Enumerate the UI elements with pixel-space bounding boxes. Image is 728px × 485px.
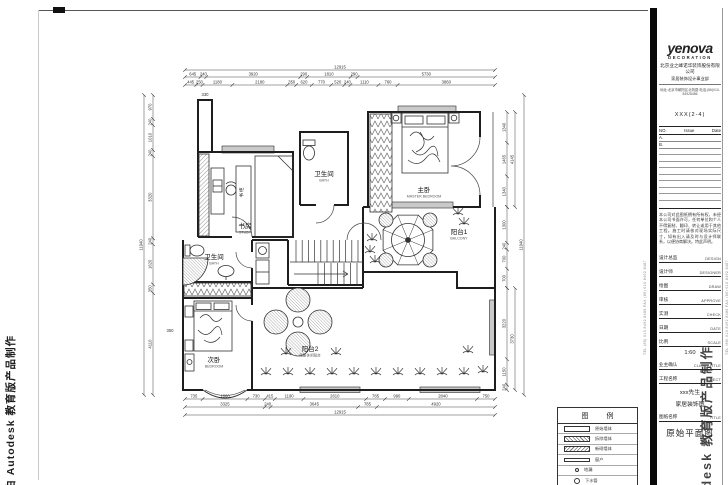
legend-item-downpipe: 下水管 bbox=[558, 476, 637, 485]
svg-text:4110: 4110 bbox=[148, 339, 153, 349]
svg-text:1810: 1810 bbox=[324, 72, 334, 77]
svg-text:12915: 12915 bbox=[334, 65, 346, 70]
field-design: 设计总监DESIGN bbox=[659, 249, 721, 263]
issue-blank-row bbox=[659, 194, 721, 201]
stairs bbox=[290, 240, 363, 285]
svg-text:3645: 3645 bbox=[310, 402, 320, 407]
legend-item-floor-drain: 地漏 bbox=[558, 466, 637, 476]
field-label-en: TITLE bbox=[710, 416, 721, 420]
field-label-en: CLIENT TITLE bbox=[694, 364, 721, 368]
svg-text:700: 700 bbox=[502, 274, 507, 282]
legend-item-label: 原始墙体 bbox=[595, 426, 612, 432]
svg-text:240: 240 bbox=[148, 149, 153, 157]
field-label-cn: 业主确认 bbox=[659, 362, 677, 368]
wall-demolish-symbol bbox=[564, 436, 590, 442]
dim-chain-right-lower: 32201150240 bbox=[502, 286, 509, 392]
issue-table: NO. Issue Date A.B. bbox=[659, 126, 721, 201]
dim-chain-right-upper-sub: 4145 bbox=[510, 110, 517, 209]
svg-text:1010: 1010 bbox=[148, 132, 153, 142]
dim-chain-bottom-total: 12915 bbox=[183, 410, 497, 417]
svg-text:1150: 1150 bbox=[502, 367, 507, 377]
issue-row: B. bbox=[659, 142, 721, 149]
room-sublabel: STUDY bbox=[239, 231, 252, 235]
field-label-en: CHECK bbox=[707, 313, 721, 317]
svg-text:240: 240 bbox=[264, 402, 272, 407]
svg-text:415: 415 bbox=[266, 394, 274, 399]
svg-text:3860: 3860 bbox=[442, 80, 452, 85]
field-label-cn: 图纸名称 bbox=[659, 414, 677, 420]
dim-chain-top-row-2: 4452501180218035062077052024011107603860 bbox=[183, 80, 497, 87]
svg-text:1110: 1110 bbox=[360, 80, 369, 85]
room-label: 阳台1 bbox=[451, 227, 468, 236]
field-label-en: PROJECT bbox=[702, 378, 721, 382]
svg-text:3325: 3325 bbox=[220, 402, 230, 407]
svg-text:1620: 1620 bbox=[148, 259, 153, 269]
dim-chain-right-upper: 134014651340 bbox=[502, 110, 509, 209]
room-sublabel: 观景休闲阳台 bbox=[299, 353, 321, 358]
svg-text:970: 970 bbox=[148, 103, 153, 111]
project-code: XXX(2-4) bbox=[659, 112, 721, 118]
issue-row: A. bbox=[659, 135, 721, 142]
svg-text:12915: 12915 bbox=[334, 410, 346, 415]
svg-text:620: 620 bbox=[300, 80, 308, 85]
field-approve: 审核APPROVE bbox=[659, 291, 721, 305]
issue-col-issue: Issue bbox=[684, 128, 694, 133]
field-label-cn: 工程名称 bbox=[659, 376, 677, 382]
svg-text:2180: 2180 bbox=[255, 80, 265, 85]
dimension-chains: 6452403920290181029057304452501180218035… bbox=[139, 65, 526, 417]
room-label: 书房 bbox=[239, 221, 252, 230]
drawing-sheet: 由 Autodesk 教育版产品制作 由 Autodesk 教育版产品制作 TE… bbox=[0, 0, 728, 485]
svg-text:3320: 3320 bbox=[148, 192, 153, 202]
issue-col-date: Date bbox=[712, 128, 721, 133]
field-value: 1:60 bbox=[659, 347, 721, 356]
svg-text:1190: 1190 bbox=[285, 394, 295, 399]
company-logo: yenova bbox=[659, 40, 721, 56]
field-check: 实测CHECK bbox=[659, 305, 721, 319]
legend-item-label: 窗户 bbox=[595, 457, 603, 463]
field-label-en: DRAW bbox=[709, 285, 721, 289]
room-label: 卫生间 bbox=[204, 252, 224, 261]
floor-drain-symbol bbox=[575, 468, 579, 472]
room-label: 书柜 bbox=[238, 187, 245, 198]
svg-text:445: 445 bbox=[187, 80, 195, 85]
svg-text:2840: 2840 bbox=[438, 394, 448, 399]
legend-box: 图 例 原始墙体拆除墙体新砌墙体窗户地漏下水管马桶下水 bbox=[557, 407, 638, 485]
svg-text:730: 730 bbox=[253, 394, 261, 399]
legend-item-label: 下水管 bbox=[585, 478, 598, 484]
dim-chain-bottom-row-2: 332524036457854920 bbox=[183, 402, 497, 409]
field-label-cn: 实测 bbox=[659, 311, 668, 317]
svg-text:760: 760 bbox=[385, 80, 393, 85]
dim-chain-right-lower-sub: 3730 bbox=[510, 286, 517, 392]
dim-chain-right-total: 11940 bbox=[519, 93, 526, 397]
legend-title: 图 例 bbox=[558, 408, 637, 424]
window-symbol bbox=[564, 458, 590, 463]
dim-chain-right-middle: 1300240700700 bbox=[502, 205, 509, 290]
svg-text:350: 350 bbox=[148, 285, 153, 293]
svg-text:1340: 1340 bbox=[502, 122, 507, 132]
field-label-en: DESIGN bbox=[705, 257, 721, 261]
legend-item-wall-demolish: 拆除墙体 bbox=[558, 434, 637, 444]
company-logo-sub: DECORATION bbox=[659, 55, 721, 60]
svg-text:4145: 4145 bbox=[510, 154, 515, 164]
field-label-en: APPROVE bbox=[701, 299, 721, 303]
svg-text:250: 250 bbox=[196, 80, 204, 85]
svg-text:240: 240 bbox=[148, 237, 153, 245]
svg-text:3730: 3730 bbox=[510, 334, 515, 344]
svg-text:3920: 3920 bbox=[249, 72, 259, 77]
field-label-en: DESIGNER bbox=[700, 271, 721, 275]
wall-new-symbol bbox=[564, 446, 590, 452]
svg-text:1860: 1860 bbox=[220, 394, 230, 399]
field-label-cn: 日期 bbox=[659, 325, 668, 331]
legend-item-wall-new: 新砌墙体 bbox=[558, 445, 637, 455]
field-client-title: 业主确认CLIENT TITLE bbox=[659, 356, 721, 370]
svg-text:1300: 1300 bbox=[502, 220, 507, 230]
issue-col-no: NO. bbox=[659, 128, 667, 133]
svg-text:11940: 11940 bbox=[139, 239, 144, 251]
svg-text:1180: 1180 bbox=[213, 80, 223, 85]
downpipe-symbol bbox=[574, 478, 580, 484]
room-sublabel: BATH bbox=[319, 179, 329, 183]
svg-text:11940: 11940 bbox=[519, 239, 524, 251]
field-label-cn: 设计总监 bbox=[659, 255, 677, 261]
field-value: xxx先生 bbox=[659, 384, 721, 396]
svg-text:990: 990 bbox=[393, 394, 401, 399]
svg-text:3220: 3220 bbox=[502, 318, 507, 328]
field-label-en: SCALE bbox=[708, 341, 721, 345]
svg-text:240: 240 bbox=[344, 80, 352, 85]
svg-text:290: 290 bbox=[351, 72, 359, 77]
room-label: 主卧 bbox=[418, 185, 432, 194]
field-designer: 设计师DESIGNER bbox=[659, 263, 721, 277]
svg-text:5730: 5730 bbox=[422, 72, 432, 77]
room-sublabel: BALCONY bbox=[450, 237, 468, 241]
title-block: yenova DECORATION 北京业之峰诺华装饰股份有限公司 家居装饰设计… bbox=[659, 12, 721, 485]
field-label-cn: 绘图 bbox=[659, 283, 668, 289]
svg-text:4920: 4920 bbox=[431, 402, 441, 407]
svg-text:785: 785 bbox=[372, 394, 380, 399]
room-label: 次卧 bbox=[208, 355, 222, 364]
field-label-en: DATE bbox=[710, 327, 721, 331]
svg-text:2610: 2610 bbox=[330, 394, 340, 399]
room-sublabel: MASTER BEDROOM bbox=[407, 195, 442, 199]
windows bbox=[222, 106, 495, 393]
wall-original-symbol bbox=[564, 426, 590, 432]
legend-item-label: 新砌墙体 bbox=[595, 446, 612, 452]
legend-item-label: 拆除墙体 bbox=[595, 436, 612, 442]
field-value: 原始平面图 bbox=[659, 422, 721, 439]
svg-text:240: 240 bbox=[502, 383, 507, 391]
titleblock-fields: 设计总监DESIGN设计师DESIGNER绘图DRAW审核APPROVE实测CH… bbox=[659, 249, 721, 439]
company-name: 北京业之峰诺华装饰股份有限公司 bbox=[659, 63, 721, 75]
room-label: 卫生间 bbox=[314, 169, 334, 178]
svg-text:240: 240 bbox=[200, 72, 208, 77]
svg-text:700: 700 bbox=[502, 255, 507, 263]
room-label: 阳台2 bbox=[302, 344, 319, 353]
svg-text:350: 350 bbox=[288, 80, 296, 85]
svg-text:1465: 1465 bbox=[502, 154, 507, 164]
dim-chain-left-total: 11940 bbox=[139, 93, 146, 397]
field-scale: 比例SCALE bbox=[659, 333, 721, 347]
company-dept: 家居装饰设计事业部 bbox=[659, 76, 721, 82]
field-label-cn: 比例 bbox=[659, 339, 668, 345]
svg-text:290: 290 bbox=[300, 72, 308, 77]
field-title: 图纸名称TITLE bbox=[659, 408, 721, 422]
field-date: 日期DATE bbox=[659, 319, 721, 333]
svg-text:770: 770 bbox=[318, 80, 326, 85]
svg-text:785: 785 bbox=[364, 402, 372, 407]
svg-text:735: 735 bbox=[190, 394, 198, 399]
field-label-cn: 审核 bbox=[659, 297, 668, 303]
dim-chain-left-chain: 9702401010240332024016203504110 bbox=[148, 93, 155, 397]
svg-text:645: 645 bbox=[189, 72, 197, 77]
field-label-cn: 设计师 bbox=[659, 269, 673, 275]
svg-text:750: 750 bbox=[482, 394, 490, 399]
dim-chain-top-total: 12915 bbox=[183, 65, 497, 72]
room-sublabel: BEDROOM bbox=[205, 365, 224, 369]
extra-dim: 350 bbox=[167, 328, 175, 333]
legend-item-window: 窗户 bbox=[558, 455, 637, 465]
extra-dim: 330 bbox=[202, 92, 210, 97]
field-value: 家居装饰图 bbox=[659, 396, 721, 408]
door-arcs bbox=[232, 137, 480, 321]
field-draw: 绘图DRAW bbox=[659, 277, 721, 291]
field-project: 工程名称PROJECT bbox=[659, 370, 721, 384]
copyright-disclaimer: 本公司对此图纸拥有所有权，未经本公司书面许可，任何单位和个人不得复制、翻印、转让… bbox=[659, 208, 721, 246]
svg-text:240: 240 bbox=[148, 118, 153, 126]
legend-item-label: 地漏 bbox=[584, 467, 592, 473]
legend-item-wall-original: 原始墙体 bbox=[558, 424, 637, 434]
svg-text:1340: 1340 bbox=[502, 186, 507, 196]
dim-chain-top-row-1: 645240392029018102905730 bbox=[183, 72, 497, 79]
room-labels: 书房STUDY卫生间BATH主卧MASTER BEDROOM阳台1BALCONY… bbox=[204, 169, 468, 369]
room-sublabel: BATH bbox=[209, 262, 219, 266]
svg-text:520: 520 bbox=[334, 80, 342, 85]
company-contact: 地址:北京市朝阳区北苑路 电话:(86)010-84928486 bbox=[659, 84, 721, 96]
